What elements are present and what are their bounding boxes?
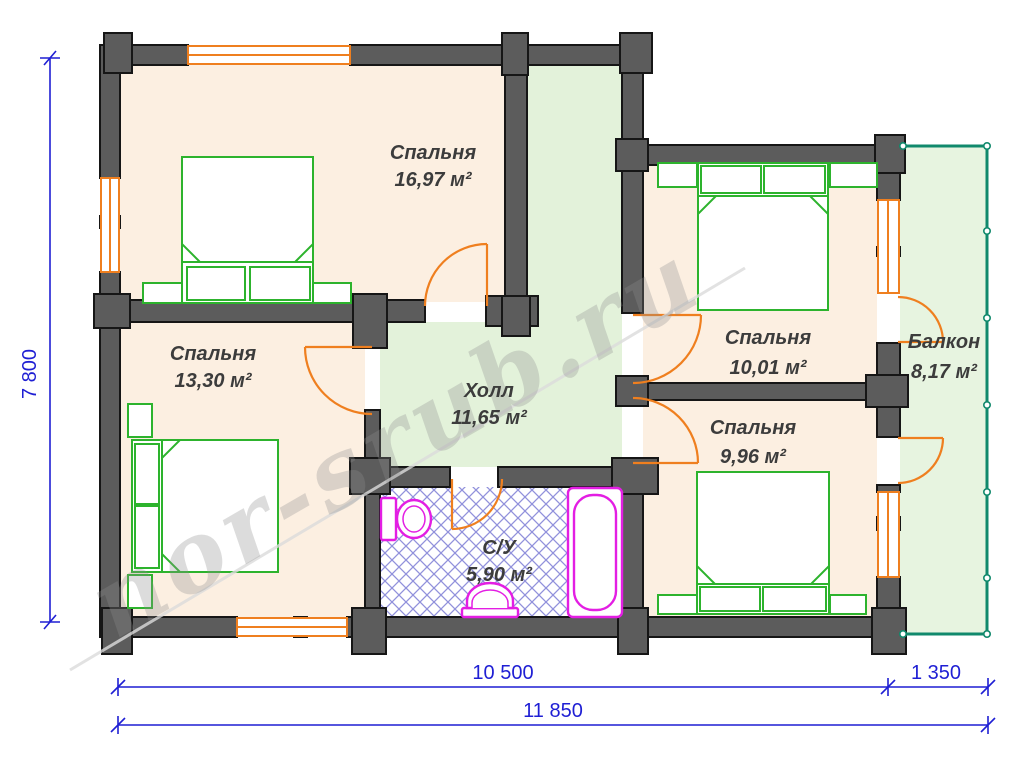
wall: [643, 383, 877, 400]
post: [866, 375, 908, 407]
post: [616, 376, 648, 406]
bathroom-area: 5,90 м²: [466, 564, 533, 586]
hall-area: 11,65 м²: [451, 407, 528, 429]
post: [353, 294, 387, 348]
bedroom4-name: Спальня: [710, 417, 796, 439]
post: [620, 33, 652, 73]
floor-plan-drawing: nor-srub.ru Спальня 16,97 м² Спальня 13,…: [0, 0, 1024, 768]
post: [875, 135, 905, 173]
dim-main-width-label: 10 500: [472, 662, 533, 684]
bedroom2-name: Спальня: [170, 343, 256, 365]
wall: [877, 485, 900, 492]
post: [502, 33, 528, 75]
bedroom2-area: 13,30 м²: [174, 370, 252, 392]
hall-name: Холл: [463, 380, 514, 402]
bedroom4-area: 9,96 м²: [720, 446, 787, 468]
bathtub: [568, 488, 622, 617]
dim-total-width-label: 11 850: [523, 700, 583, 722]
post: [94, 294, 130, 328]
bedroom1-area: 16,97 м²: [394, 169, 472, 191]
post: [616, 139, 648, 171]
bedroom3-area: 10,01 м²: [729, 357, 807, 379]
balcony-floor: [900, 145, 988, 635]
bedroom3-name: Спальня: [725, 327, 811, 349]
bedroom1-name: Спальня: [390, 142, 476, 164]
post: [352, 608, 386, 654]
bathroom-name: С/У: [482, 537, 517, 559]
balcony-area: 8,17 м²: [911, 361, 978, 383]
balcony-name: Балкон: [908, 331, 980, 353]
dim-balcony-width-label: 1 350: [911, 662, 961, 684]
dim-height-label: 7 800: [19, 349, 41, 399]
post: [618, 608, 648, 654]
post: [104, 33, 132, 73]
wall: [505, 45, 527, 333]
floor-plan-page: nor-srub.ru Спальня 16,97 м² Спальня 13,…: [0, 0, 1024, 768]
